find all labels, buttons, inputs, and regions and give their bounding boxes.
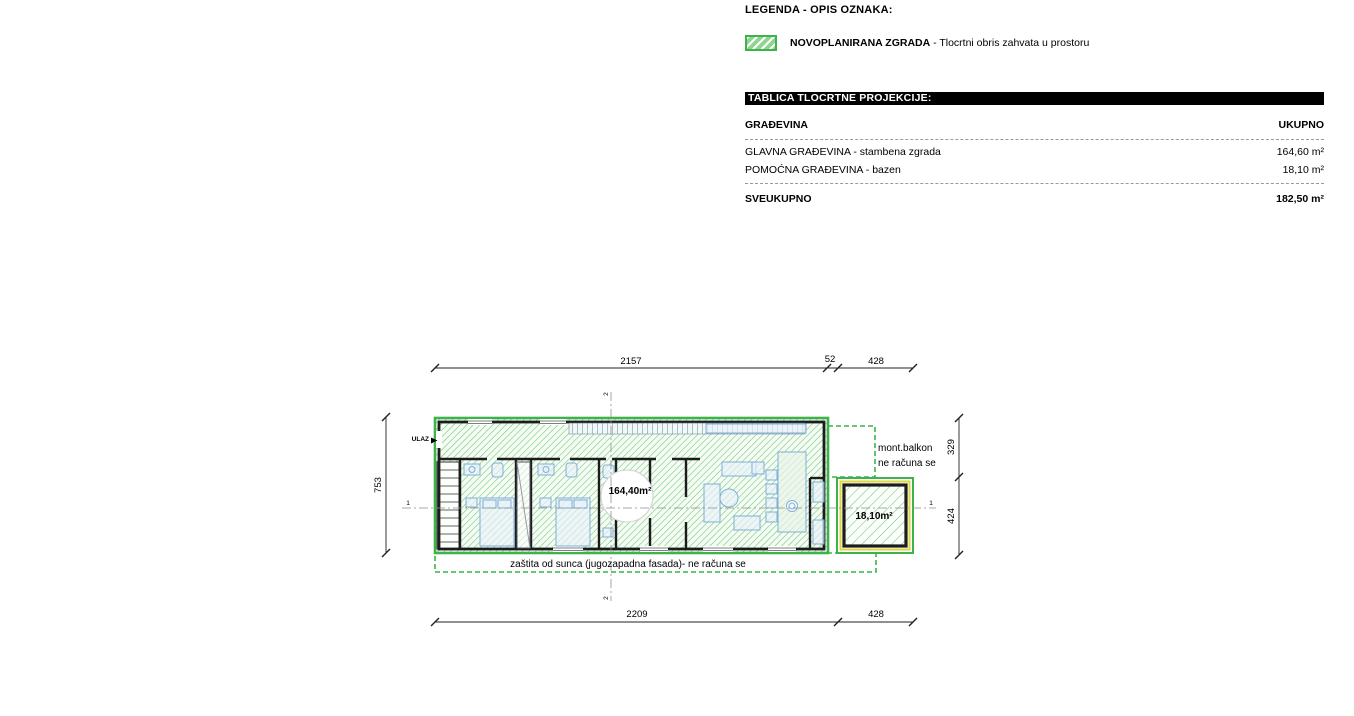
pool-area-label: 18,10m² xyxy=(855,511,893,522)
entrance-label: ULAZ xyxy=(412,436,438,444)
dimension-left: 753 xyxy=(373,413,390,557)
floor-plan-drawing: 1 1 2 2 164,40m² 18,10m² mont.balkon ne … xyxy=(0,0,1354,716)
dim-left: 753 xyxy=(373,477,384,493)
svg-text:ULAZ: ULAZ xyxy=(412,436,429,443)
dim-right-upper: 329 xyxy=(946,439,957,455)
dimension-top: 2157 52 428 xyxy=(431,354,917,372)
balcony-note-line1: mont.balkon xyxy=(878,443,932,454)
dim-top-right: 428 xyxy=(868,356,884,367)
dim-top-main: 2157 xyxy=(620,356,641,367)
balcony-note-line2: ne računa se xyxy=(878,458,936,469)
axis-2-marker: 2 xyxy=(603,392,610,396)
dim-top-small: 52 xyxy=(825,354,836,365)
dim-bottom-main: 2209 xyxy=(626,609,647,620)
axis-1-marker: 1 xyxy=(929,500,933,507)
dimension-right: 329 424 xyxy=(946,414,963,559)
dim-bottom-right: 428 xyxy=(868,609,884,620)
main-building-area-label: 164,40m² xyxy=(609,486,652,497)
mounted-balcony-zone xyxy=(828,426,875,477)
dim-right-lower: 424 xyxy=(946,508,957,524)
sun-protection-label: zaštita od sunca (jugozapadna fasada)- n… xyxy=(510,559,746,570)
axis-2-marker: 2 xyxy=(603,596,610,600)
dimension-bottom: 2209 428 xyxy=(431,609,917,626)
axis-1-marker: 1 xyxy=(406,500,410,507)
